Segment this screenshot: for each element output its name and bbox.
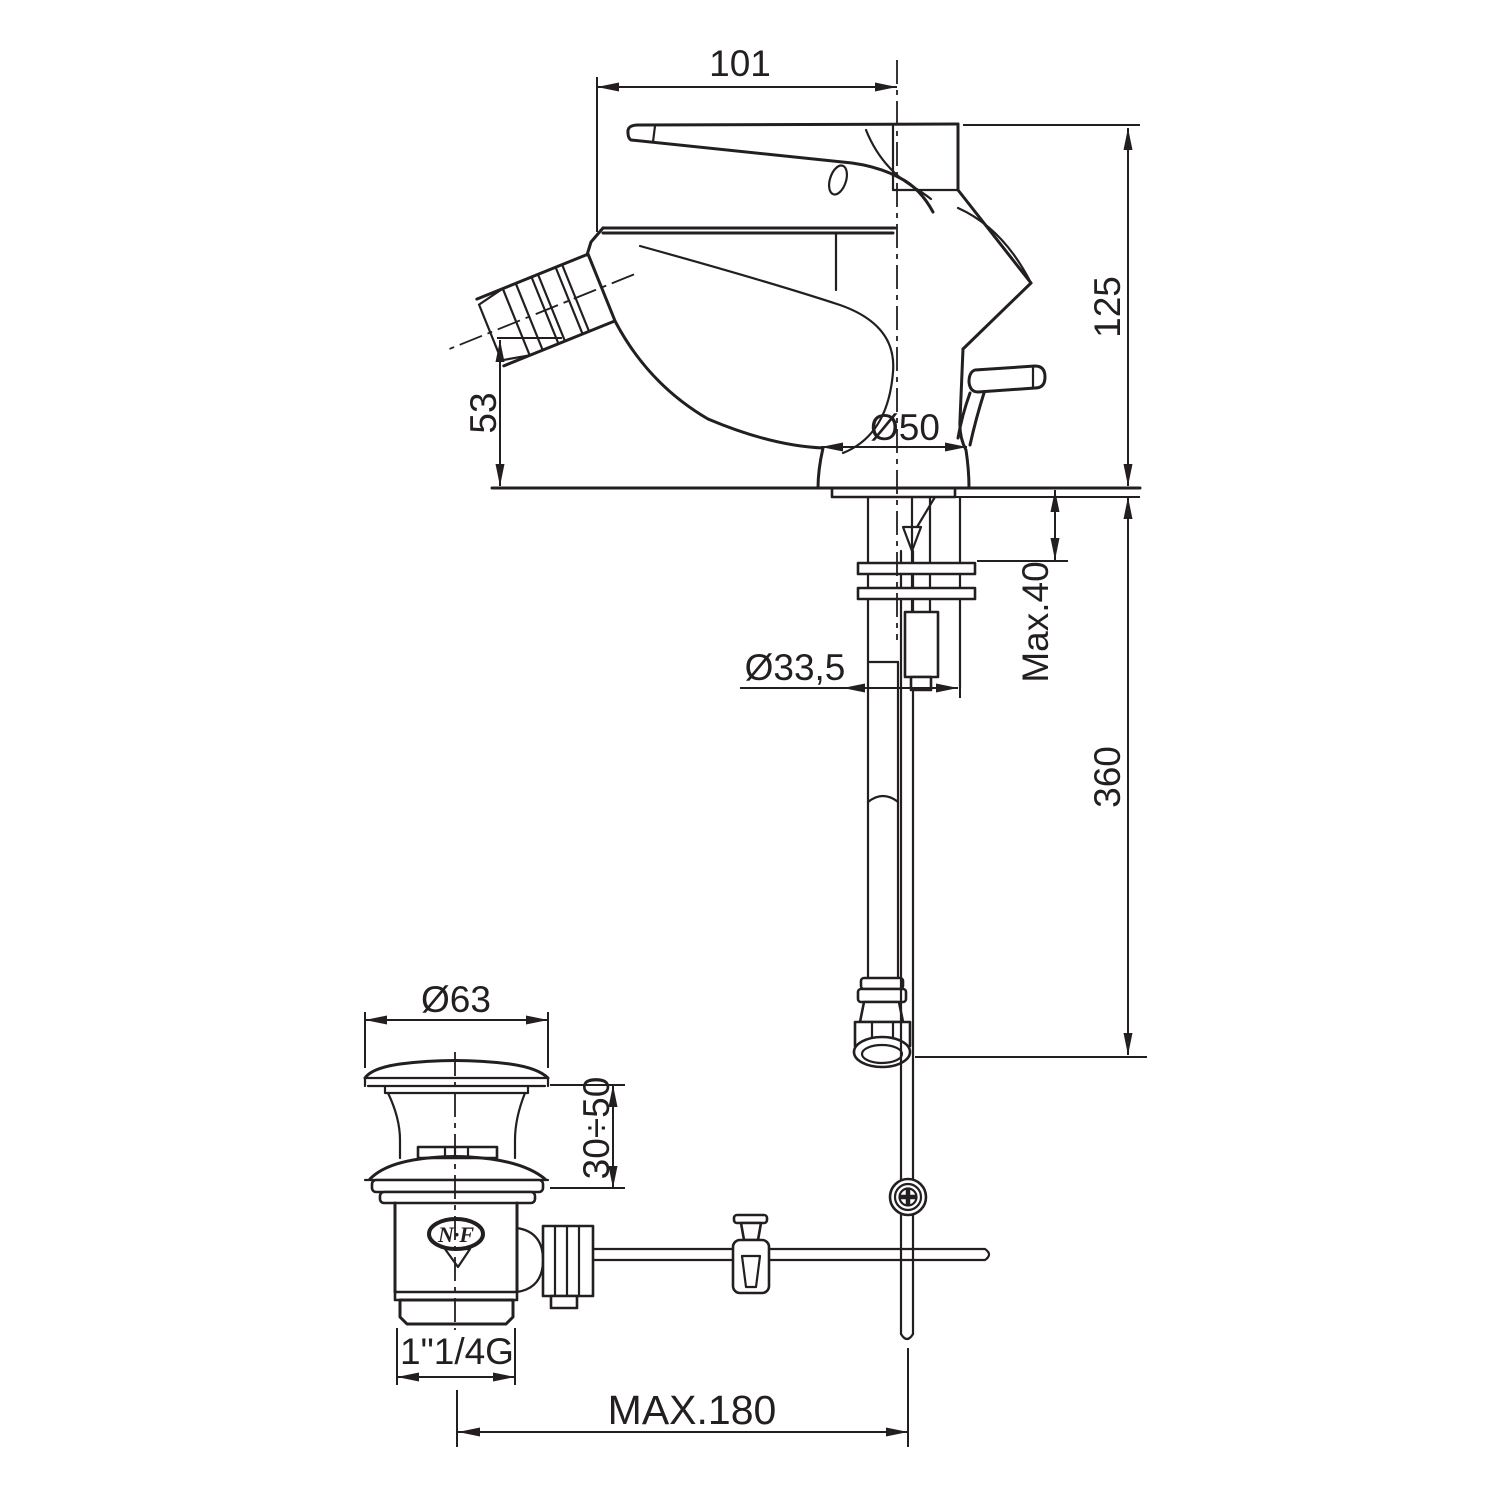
dim-label-53: 53 (463, 392, 504, 433)
technical-drawing-page: N·F 101 (0, 0, 1500, 1500)
waste-tee-nut (517, 1226, 593, 1308)
bidet-mixer-drawing: N·F 101 (0, 0, 1500, 1500)
spout (587, 228, 895, 488)
pop-up-knob (958, 366, 1045, 445)
faucet-body (430, 124, 1045, 497)
dim-waste-thread: 1"1/4G (397, 1328, 515, 1385)
dim-label-30-50: 30÷50 (576, 1077, 617, 1180)
dim-max-deck: Max.40 (977, 490, 1068, 683)
dim-label-101: 101 (709, 43, 771, 84)
dim-waste-diameter: Ø63 (365, 979, 548, 1068)
dim-label-max40: Max.40 (1015, 561, 1056, 682)
dim-label-max180: MAX.180 (608, 1387, 777, 1433)
waste-assembly: N·F (365, 1061, 593, 1325)
aerator (430, 241, 647, 385)
rod-coupler-screw (890, 1179, 926, 1215)
dim-label-d63: Ø63 (421, 979, 491, 1020)
lever-pivot-detail (826, 163, 850, 196)
dim-label-360: 360 (1087, 746, 1128, 808)
washer-top (858, 563, 975, 574)
lift-rod-linkage (593, 1215, 989, 1293)
nf-certification-mark: N·F (429, 1219, 483, 1267)
dim-top-width: 101 (597, 43, 897, 232)
washer-bottom (858, 588, 975, 599)
dim-label-125: 125 (1087, 276, 1128, 338)
dim-waste-height-range: 30÷50 (550, 1077, 625, 1188)
rod-clamp (733, 1215, 769, 1293)
dim-spout-height: 53 (463, 338, 562, 486)
dim-label-d33-5: Ø33,5 (745, 647, 846, 688)
dim-height: 125 (963, 125, 1140, 486)
nf-arrow-icon (445, 1249, 470, 1267)
dim-base-diameter: Ø50 (821, 407, 967, 452)
centerlines (455, 60, 897, 1330)
lever-handle (628, 124, 958, 212)
mounting-hardware (858, 563, 975, 690)
waste-thread (400, 1300, 513, 1324)
dim-label-thread: 1"1/4G (400, 1331, 514, 1372)
dim-rod-max-reach: MAX.180 (457, 1348, 908, 1447)
dim-label-d50: Ø50 (870, 407, 940, 448)
mounting-stud (905, 612, 938, 677)
